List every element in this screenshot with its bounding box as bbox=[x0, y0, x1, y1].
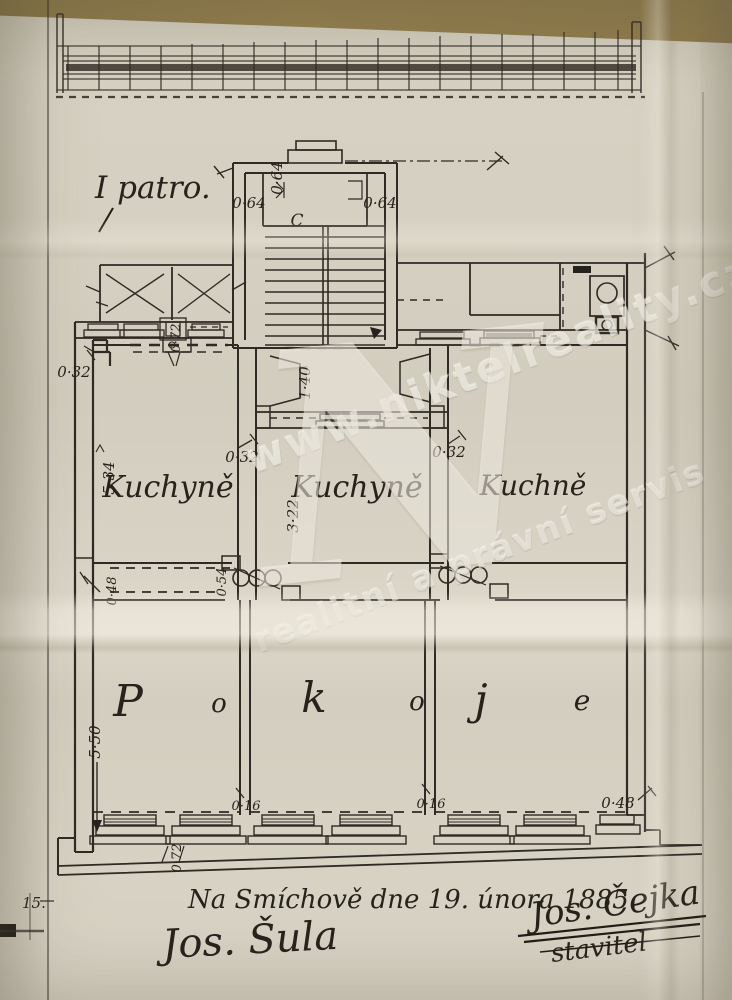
stair-letter: C bbox=[290, 211, 303, 231]
dim-mid-door: 0·54 bbox=[215, 568, 230, 597]
room-letter-o1: o bbox=[211, 689, 227, 719]
dimension-labels: 0·64 0·64 0·64 C 0·72 0·32 1·40 5·34 0·3… bbox=[57, 161, 634, 872]
floor-label-flourish bbox=[99, 208, 113, 232]
dim-left-wing-wall: 0·72 bbox=[169, 324, 184, 353]
dim-room-wall-right: 0·48 bbox=[601, 794, 634, 812]
chimney-base bbox=[288, 150, 342, 163]
floorplan-scan: 0·64 0·64 0·64 C 0·72 0·32 1·40 5·34 0·3… bbox=[0, 0, 732, 1000]
room-label-kitchen-left: Kuchyně bbox=[101, 470, 233, 505]
room-letter-o2: o bbox=[409, 687, 425, 717]
stove-fixture bbox=[590, 276, 624, 333]
entry-corridor bbox=[256, 354, 448, 428]
dim-wall-left-top: 0·32 bbox=[57, 363, 90, 381]
room-letter-k: k bbox=[301, 673, 326, 722]
builder-title: stavitel bbox=[549, 927, 648, 969]
room-letter-j: j bbox=[466, 675, 487, 724]
stairs bbox=[265, 226, 385, 345]
room-letter-p: P bbox=[112, 676, 144, 727]
dim-kitchen-left-wall: 0·32 bbox=[225, 448, 258, 466]
right-wing bbox=[397, 246, 679, 350]
room-labels: Kuchyně Kuchyně Kuchně P o k o j e bbox=[101, 469, 590, 727]
dim-entry-width: 1·40 bbox=[296, 366, 314, 400]
chimney-top bbox=[296, 141, 336, 150]
mid-wall-band bbox=[75, 554, 627, 600]
margin-note: 15. bbox=[22, 894, 46, 912]
room-label-kitchen-middle: Kuchyně bbox=[290, 470, 422, 505]
stairwell bbox=[214, 141, 509, 348]
room-letter-e: e bbox=[574, 684, 591, 717]
dim-stair-top: 0·64 bbox=[268, 161, 286, 194]
facade-section bbox=[56, 14, 645, 97]
dim-room-wall-a: 0·16 bbox=[232, 799, 261, 814]
dim-room-wall-b: 0·16 bbox=[417, 797, 446, 812]
wing-windows-right bbox=[416, 331, 562, 345]
wall-fill bbox=[573, 266, 591, 273]
bottom-windows bbox=[90, 815, 640, 844]
room-label-kitchen-right: Kuchně bbox=[479, 469, 587, 502]
demolition-x-marks bbox=[86, 274, 246, 313]
signature-owner: Jos. Šula bbox=[154, 912, 339, 969]
dim-stair-right: 0·64 bbox=[363, 194, 396, 212]
floor-label: I patro. bbox=[94, 170, 211, 206]
stair-direction-arrow bbox=[370, 327, 382, 339]
bottom-rooms bbox=[58, 600, 702, 875]
dim-stair-left: 0·64 bbox=[232, 194, 265, 212]
dim-room-wall-left: 0·48 bbox=[105, 577, 120, 606]
plan-drawing: 0·64 0·64 0·64 C 0·72 0·32 1·40 5·34 0·3… bbox=[0, 0, 732, 1000]
dim-kitchen-mid-wall: 0·32 bbox=[432, 443, 465, 461]
outer-walls bbox=[75, 253, 645, 852]
dim-room-depth: 5·50 bbox=[86, 725, 104, 759]
left-wing bbox=[75, 265, 246, 366]
dim-window-pier: 0·72 bbox=[170, 844, 185, 873]
